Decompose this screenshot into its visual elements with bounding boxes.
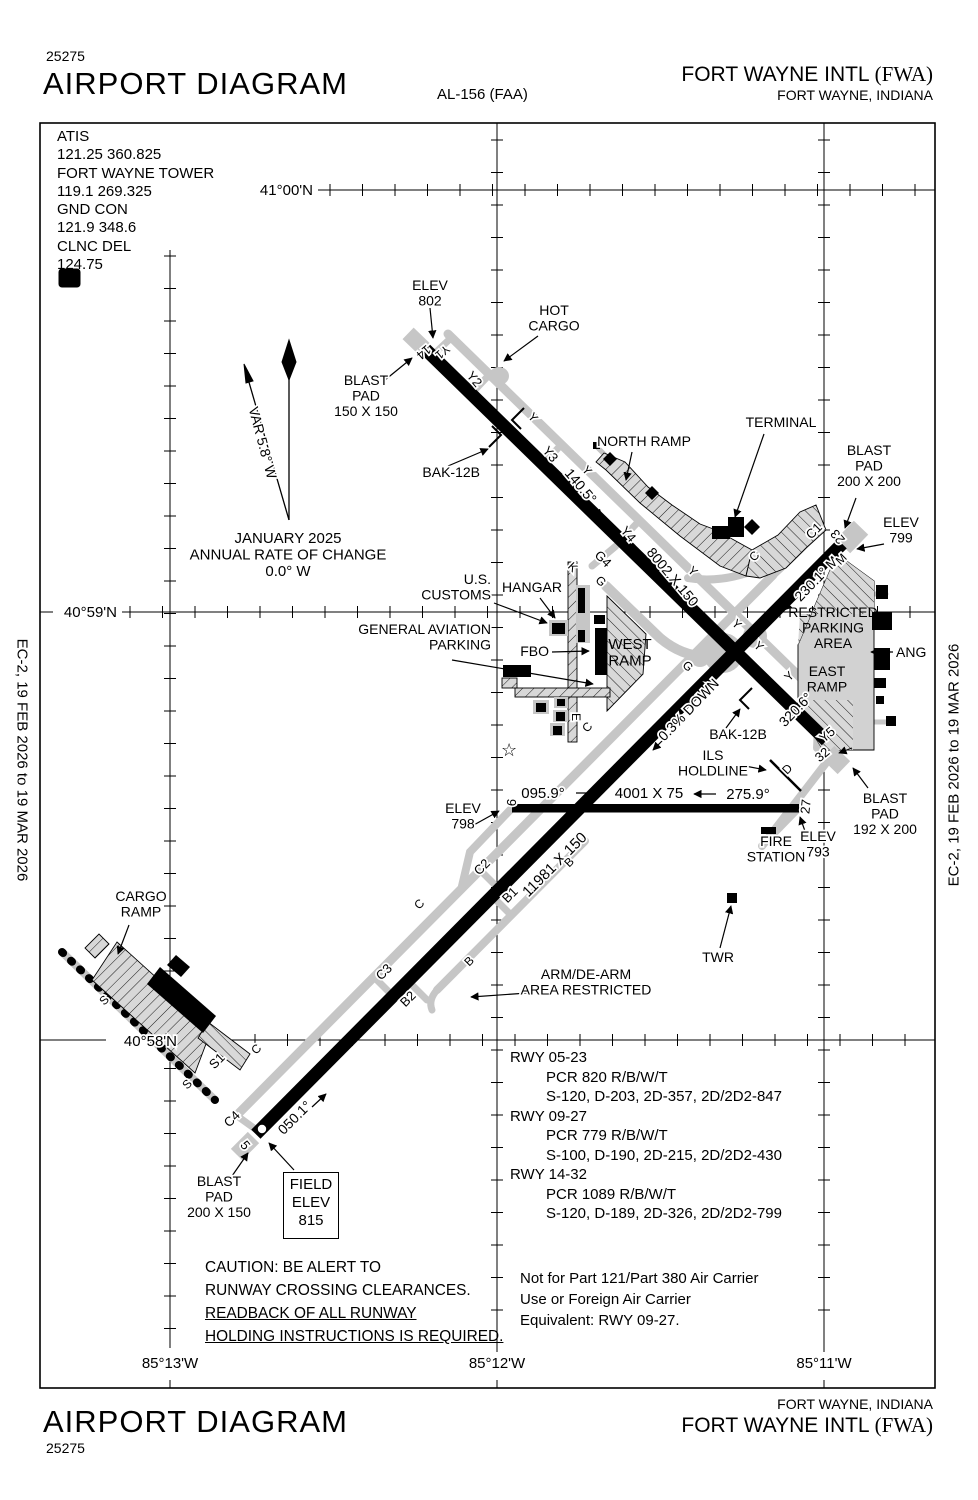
text-line: CAUTION: BE ALERT TO [205,1256,503,1279]
twr: TWR [702,949,734,965]
text-line: Use or Foreign Air Carrier [520,1289,758,1310]
city-state-footer: FORT WAYNE, INDIANA [777,1396,933,1412]
hot-cargo: HOTCARGO [528,302,579,333]
dim-rwy-09-27: 4001 X 75 [615,785,683,802]
text-line: ELEV [284,1194,338,1212]
rwy-num-9: 9 [504,798,520,807]
north-ramp: NORTH RAMP [597,433,691,449]
rwy-num-27: 27 [797,799,813,815]
arresting-gear-east [740,688,752,709]
caution-note: CAUTION: BE ALERT TORUNWAY CROSSING CLEA… [205,1256,503,1348]
text-line: PCR 1089 R/B/W/T [510,1185,782,1205]
carrier-note: Not for Part 121/Part 380 Air CarrierUse… [520,1268,758,1331]
text-line: RWY 05-23 [510,1048,782,1068]
bak-12b-east: BAK-12B [709,726,767,742]
twy-c-d: C [248,1041,264,1057]
elev-798: ELEV798 [445,800,481,831]
hdg-095-9: 095.9° [521,785,565,802]
tower-building [727,893,737,903]
terminal: TERMINAL [746,414,817,430]
text-line: HOLDING INSTRUCTIONS IS REQUIRED. [205,1325,503,1348]
east-ramp: EASTRAMP [807,663,847,694]
text-line: READBACK OF ALL RUNWAY [205,1302,503,1325]
text-line: 124.75 [57,256,214,274]
terminal-building [712,526,730,539]
procedure-id: AL-156 (FAA) [437,86,528,103]
text-line: RWY 14-32 [510,1165,782,1185]
text-line: S-120, D-203, 2D-357, 2D/2D2-847 [510,1087,782,1107]
var-label: VAR 5.8° W [246,405,281,481]
fbo: FBO [520,643,549,659]
taxilane-e [515,688,610,697]
arm-de-arm: ARM/DE-ARMAREA RESTRICTED [521,966,652,997]
elev-799: ELEV799 [883,514,919,545]
map-labels: 41°00'N40°59'N40°58'N85°13'W85°12'W85°11… [64,182,926,1372]
effective-dates-right: EC-2, 19 FEB 2026 to 19 MAR 2026 [946,644,963,887]
text-line: 815 [284,1212,338,1230]
text-line: S-100, D-190, 2D-215, 2D/2D2-430 [510,1146,782,1166]
customs-building [552,623,565,634]
text-line: GND CON [57,201,214,219]
airport-code-text-footer: (FWA) [875,1413,933,1437]
text-line: PCR 779 R/B/W/T [510,1126,782,1146]
airport-code-text: (FWA) [875,62,933,86]
runway-09-27 [512,804,799,813]
fire-station: FIRESTATION [747,833,806,864]
blast-pad-14: BLASTPAD150 X 150 [334,372,398,419]
chart-number-bottom: 25275 [46,1440,85,1456]
bak-12b-west: BAK-12B [422,464,480,480]
text-line: PCR 820 R/B/W/T [510,1068,782,1088]
text-line: Not for Part 121/Part 380 Air Carrier [520,1268,758,1289]
text-line: FIELD [284,1176,338,1194]
field-elevation-box: FIELDELEV815 [283,1172,339,1239]
text-line: 121.9 348.6 [57,219,214,237]
arresting-gear-west [512,408,524,429]
airport-name-text-footer: FORT WAYNE INTL [681,1414,874,1437]
us-customs: U.S.CUSTOMS [421,571,491,602]
hdg-275-9: 275.9° [726,786,770,803]
runway-data-block: RWY 05-23PCR 820 R/B/W/TS-120, D-203, 2D… [510,1048,782,1224]
text-line: RUNWAY CROSSING CLEARANCES. [205,1279,503,1302]
elev-793: ELEV793 [800,828,836,859]
blast-pad-32: BLASTPAD192 X 200 [853,790,917,837]
city-state-header: FORT WAYNE, INDIANA [777,87,933,103]
airport-name-text: FORT WAYNE INTL [681,63,874,86]
text-line: Equivalent: RWY 09-27. [520,1310,758,1331]
elev-802: ELEV802 [412,277,448,308]
page-title-footer: AIRPORT DIAGRAM [43,1404,348,1440]
text-line: ATIS [57,128,214,146]
blast-pad-23: BLASTPAD200 X 200 [837,442,901,489]
lon-85-11w: 85°11'W [796,1355,852,1372]
lon-85-12w: 85°12'W [469,1355,526,1372]
text-line: CLNC DEL [57,238,214,256]
mag-var-note: JANUARY 2025ANNUAL RATE OF CHANGE0.0° W [190,530,387,580]
lon-85-13w: 85°13'W [142,1355,199,1372]
twy-e: E [569,713,583,721]
lat-41-00n: 41°00'N [260,182,313,199]
text-line: FORT WAYNE TOWER [57,165,214,183]
fbo-building [595,628,607,675]
hangar: HANGAR [502,579,562,595]
airport-diagram-page: 41°00'N40°59'N40°58'N85°13'W85°12'W85°11… [0,0,978,1500]
twy-c-b: C [579,719,595,735]
effective-dates-left: EC-2, 19 FEB 2026 to 19 MAR 2026 [14,639,31,882]
ang: ANG [896,644,926,660]
airport-beacon: ☆ [501,740,517,760]
text-line: RWY 09-27 [510,1107,782,1127]
text-line: S-120, D-189, 2D-326, 2D/2D2-799 [510,1204,782,1224]
text-line: 121.25 360.825 [57,146,214,164]
frequency-box: ATIS121.25 360.825FORT WAYNE TOWER119.1 … [57,128,214,274]
twy-c-c: C [411,896,427,912]
chart-number-top: 25275 [46,48,85,64]
lat-40-59n: 40°59'N [64,604,117,621]
ils-holdline: ILSHOLDLINE [678,747,748,778]
text-line: 119.1 269.325 [57,183,214,201]
general-aviation-parking: GENERAL AVIATIONPARKING [358,621,491,652]
airport-name-footer: FORT WAYNE INTL (FWA) [681,1413,933,1438]
twy-k: K [565,559,581,575]
runway-5-threshold-dot [258,1125,266,1133]
twy-d: D [779,761,795,777]
cargo-ramp: CARGORAMP [115,888,166,919]
west-ramp: WESTRAMP [608,636,651,670]
airport-name-header: FORT WAYNE INTL (FWA) [681,62,933,87]
blast-pad-5: BLASTPAD200 X 150 [187,1173,251,1220]
lat-40-58n: 40°58'N [124,1033,177,1050]
page-title: AIRPORT DIAGRAM [43,66,348,102]
